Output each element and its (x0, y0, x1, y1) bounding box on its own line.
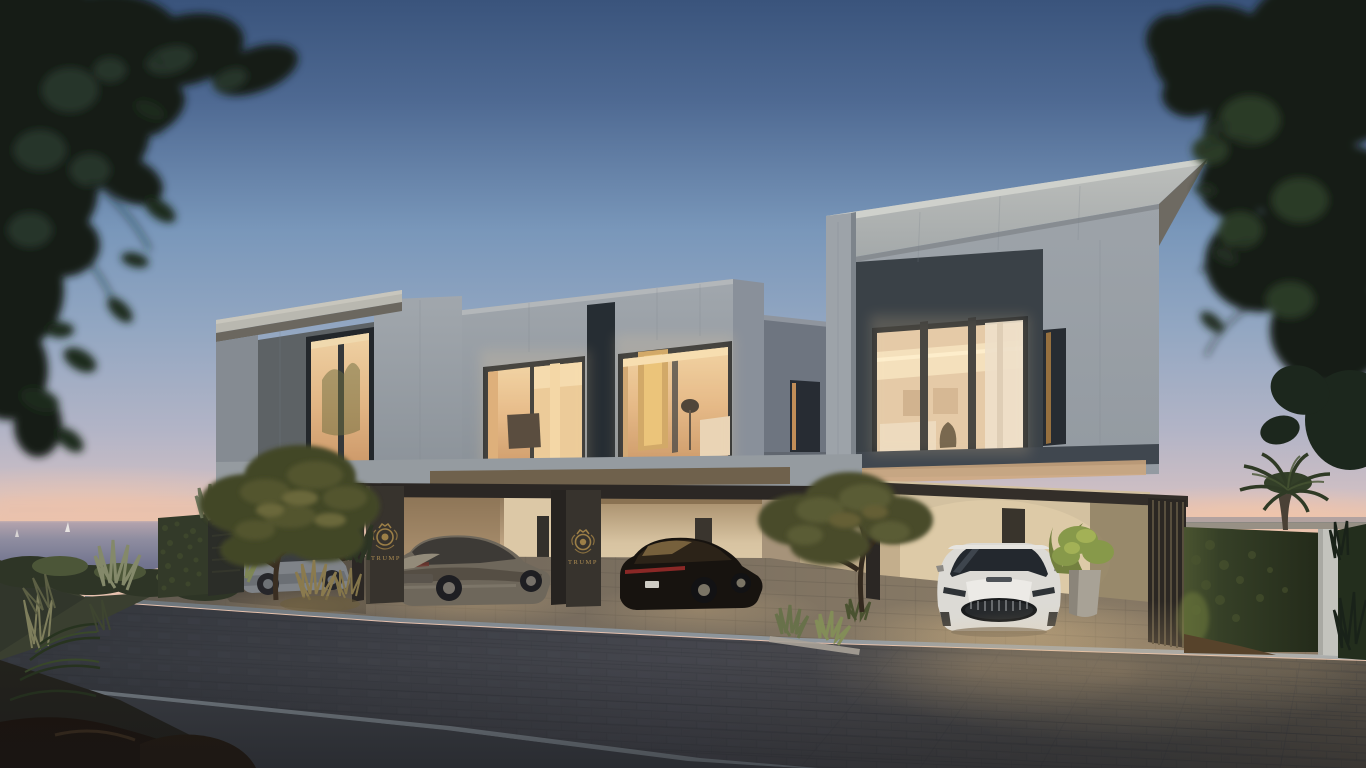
svg-text:TRUMP: TRUMP (371, 555, 401, 562)
svg-text:TRUMP: TRUMP (568, 559, 598, 566)
